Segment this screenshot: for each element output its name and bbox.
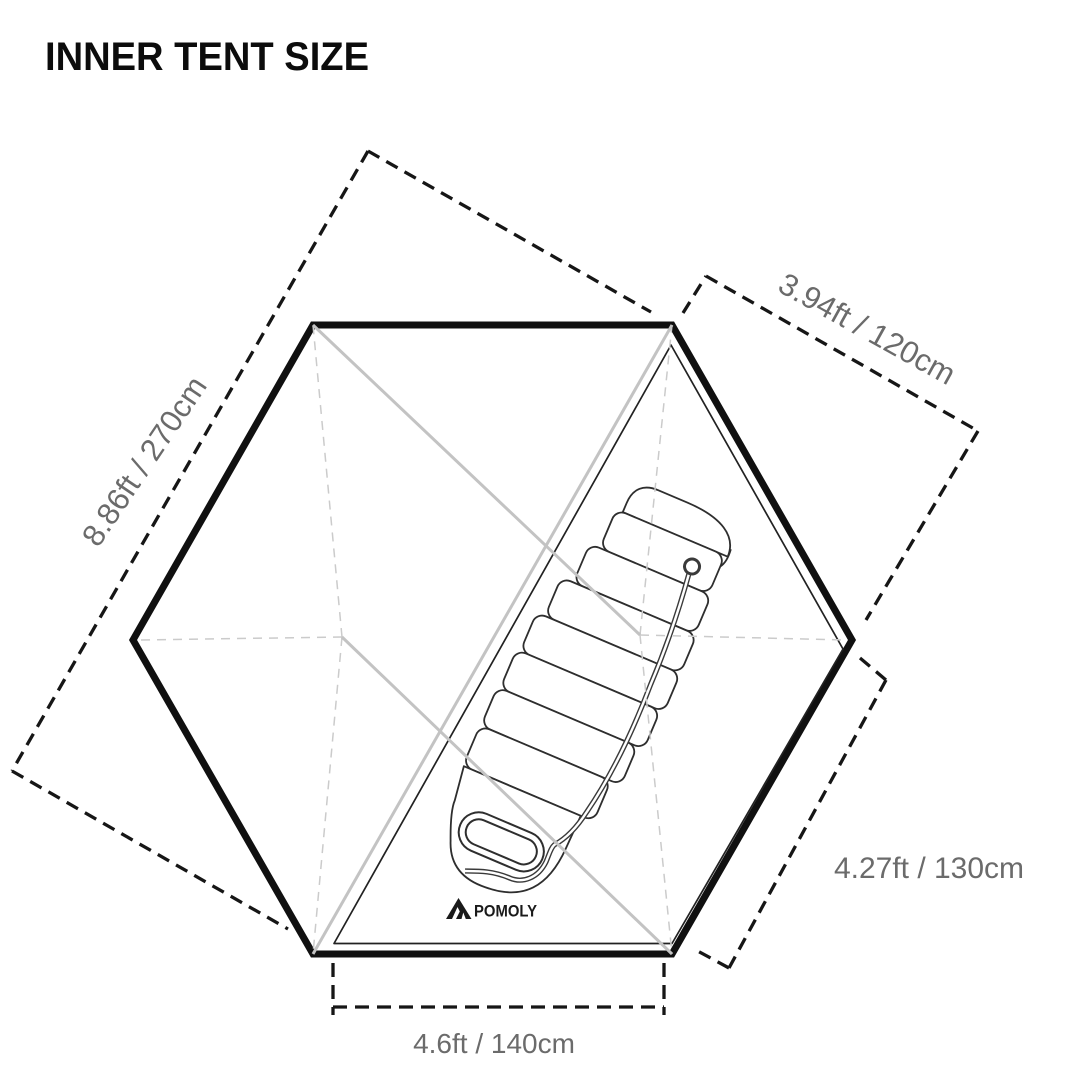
svg-text:4.27ft / 130cm: 4.27ft / 130cm [834,852,1024,885]
svg-text:4.6ft / 140cm: 4.6ft / 140cm [413,1028,575,1059]
svg-text:POMOLY: POMOLY [474,903,537,921]
svg-text:INNER TENT SIZE: INNER TENT SIZE [45,35,369,79]
